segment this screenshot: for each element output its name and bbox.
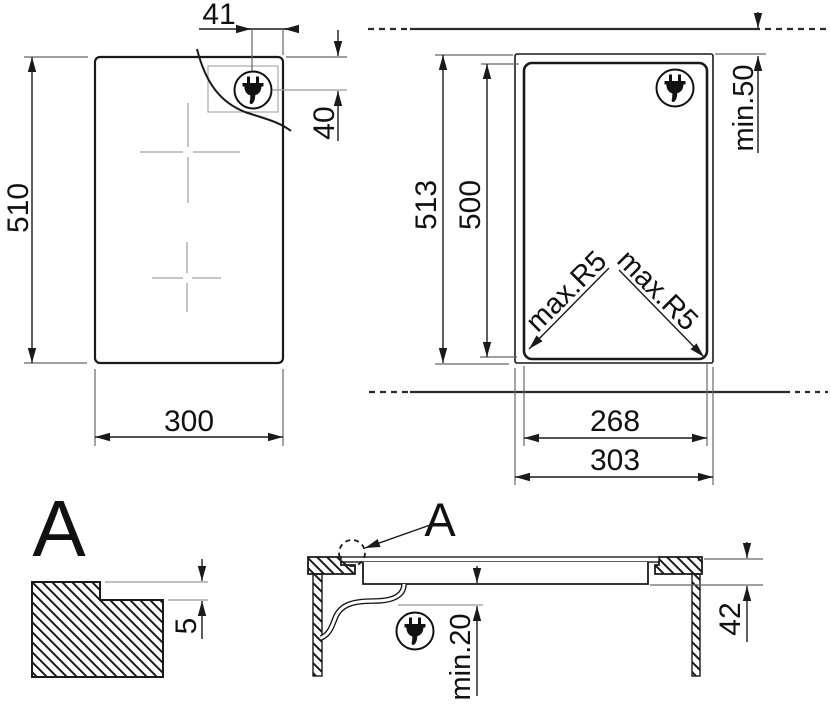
detail-title: A xyxy=(32,484,86,573)
dim-cutout-height: 500 xyxy=(454,64,519,357)
plug-icon xyxy=(235,72,272,109)
worktop-section-right xyxy=(655,557,702,574)
dim-plug-offset-right: 41 xyxy=(199,0,299,71)
detail-a-marker: A xyxy=(339,493,456,566)
cutout-view: 513 500 min.50 max.R5 max.R5 xyxy=(368,12,829,485)
dim-label-303: 303 xyxy=(590,444,640,477)
dim-label-42: 42 xyxy=(714,602,747,635)
dim-label-510: 510 xyxy=(2,183,35,233)
detail-leader xyxy=(365,524,433,548)
drawing-canvas: 41 40 510 300 xyxy=(0,0,831,704)
dim-rear-clearance: min.50 xyxy=(715,12,766,153)
power-cable xyxy=(321,584,404,638)
corner-radius-left: max.R5 xyxy=(520,245,613,349)
dim-label-5: 5 xyxy=(170,618,203,635)
hob-glass-section xyxy=(341,557,659,562)
plug-icon xyxy=(657,70,694,107)
section-view: A min.20 42 xyxy=(308,493,763,701)
dim-hob-width: 300 xyxy=(95,369,283,446)
dim-label-500: 500 xyxy=(454,180,487,230)
cabinet-panel-left xyxy=(313,574,322,676)
detail-ref-label: A xyxy=(424,493,456,546)
dim-label-268: 268 xyxy=(590,405,640,438)
plan-view: 41 40 510 300 xyxy=(2,0,347,446)
hob-body-section xyxy=(363,562,648,584)
dim-label-513: 513 xyxy=(410,180,443,230)
dim-label-min20: min.20 xyxy=(445,613,477,700)
detail-a-view: A 5 xyxy=(32,484,208,677)
dim-label-40: 40 xyxy=(308,106,341,139)
label-maxR5-left: max.R5 xyxy=(520,245,613,338)
zone-cross-large xyxy=(140,103,240,203)
corner-radius-right: max.R5 xyxy=(611,244,704,357)
label-maxR5-right: max.R5 xyxy=(611,244,704,337)
cabinet-panel-right xyxy=(692,574,700,676)
plug-icon xyxy=(397,613,434,650)
dim-cutout-width: 268 xyxy=(524,363,707,446)
zone-cross-small xyxy=(152,242,221,312)
dim-label-41: 41 xyxy=(202,0,235,31)
dim-label-min50: min.50 xyxy=(728,64,760,151)
installation-drawing: 41 40 510 300 xyxy=(0,0,831,704)
worktop-step-section xyxy=(32,582,163,677)
dim-label-300: 300 xyxy=(164,405,214,438)
dim-hob-height: 510 xyxy=(2,57,88,363)
